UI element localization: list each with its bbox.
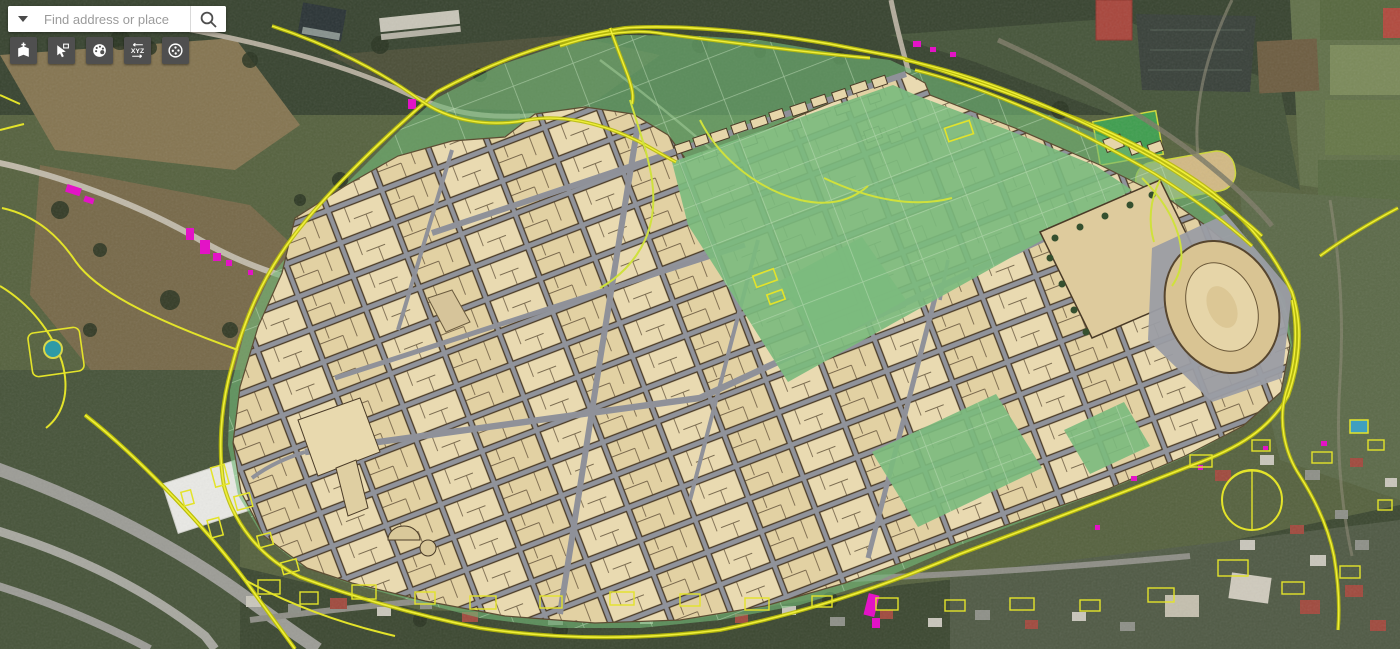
palette-icon	[91, 42, 108, 59]
coordinate-conversion-button[interactable]: XYZ	[124, 37, 151, 64]
xyz-label: XYZ	[131, 48, 144, 55]
search-button[interactable]	[190, 6, 226, 32]
select-identify-button[interactable]	[48, 37, 75, 64]
add-data-button[interactable]	[10, 37, 37, 64]
search-widget	[8, 6, 226, 32]
widget-toolbar: XYZ	[10, 37, 189, 64]
search-input[interactable]	[38, 6, 190, 32]
magnifier-icon	[199, 10, 218, 29]
map-add-icon	[15, 42, 32, 59]
xyz-arrows-icon: XYZ	[129, 42, 146, 59]
search-source-dropdown[interactable]	[8, 6, 38, 32]
map-canvas[interactable]	[0, 0, 1400, 649]
select-cursor-icon	[53, 42, 70, 59]
points-tool-button[interactable]	[162, 37, 189, 64]
web-map-app: XYZ	[0, 0, 1400, 649]
draw-style-button[interactable]	[86, 37, 113, 64]
chevron-down-icon	[18, 16, 28, 22]
dotted-circle-icon	[167, 42, 184, 59]
